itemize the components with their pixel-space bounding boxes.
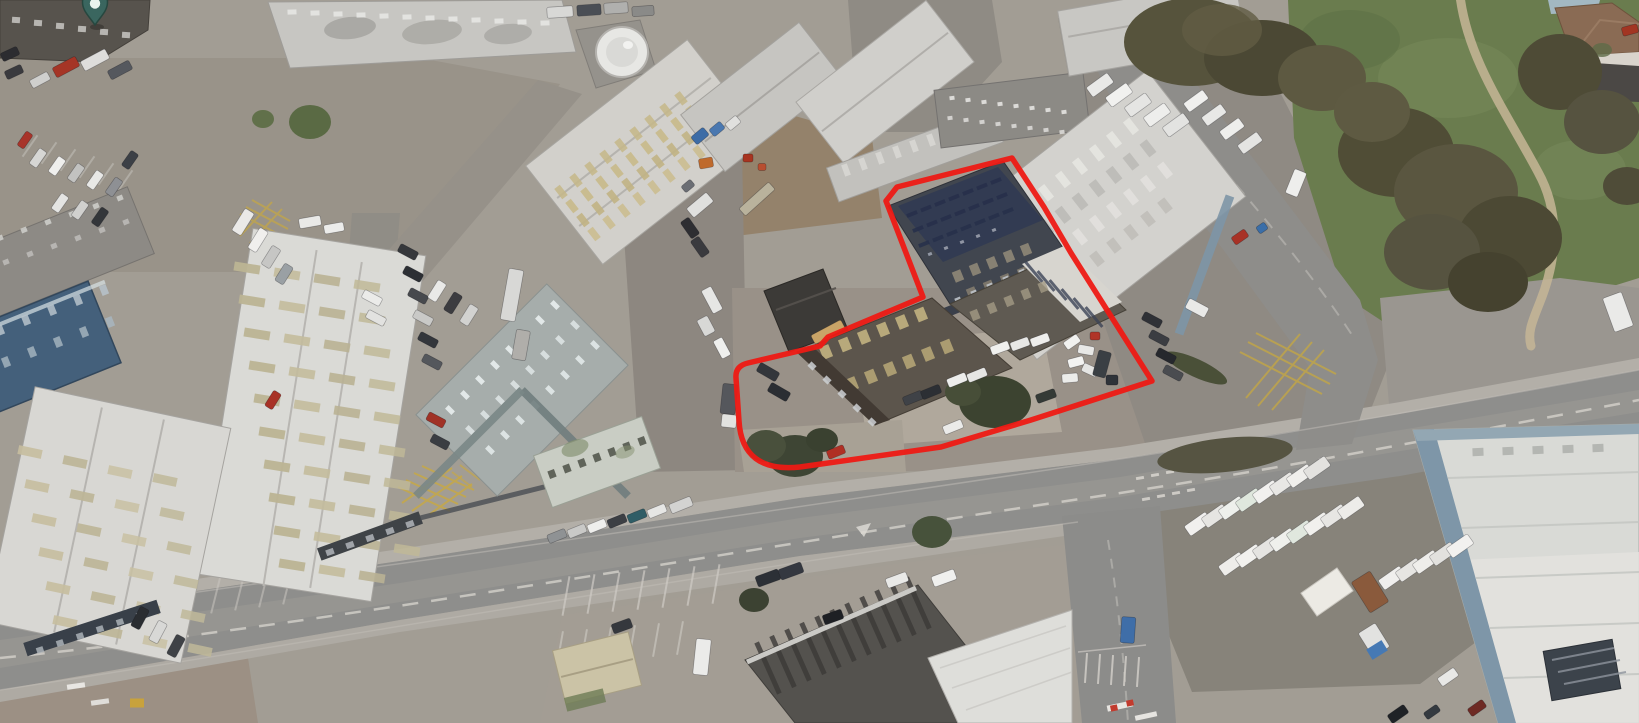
tree — [739, 588, 769, 612]
tree — [1448, 252, 1528, 312]
tree — [1564, 90, 1639, 154]
vehicle — [577, 4, 602, 17]
vehicle — [1090, 332, 1100, 340]
map-pin-shadow — [90, 24, 104, 30]
tree — [1182, 4, 1262, 56]
tree — [252, 110, 274, 128]
vehicle — [547, 6, 574, 19]
vehicle — [698, 157, 714, 169]
roof-detail — [623, 41, 633, 49]
tree — [912, 516, 952, 548]
tree — [1334, 82, 1410, 142]
vehicle — [1120, 617, 1136, 644]
aerial-imagery[interactable] — [0, 0, 1639, 723]
vehicle — [1062, 373, 1079, 383]
equipment — [130, 699, 144, 708]
vehicle — [758, 164, 766, 171]
vehicle — [743, 154, 753, 162]
vehicle — [632, 5, 655, 17]
vehicle — [1106, 375, 1118, 385]
tree — [289, 105, 331, 139]
vehicle — [604, 2, 629, 15]
aerial-map-canvas[interactable] — [0, 0, 1639, 723]
road-south-arm — [1062, 506, 1176, 723]
silo-tank — [606, 37, 638, 67]
vehicle — [721, 414, 737, 428]
